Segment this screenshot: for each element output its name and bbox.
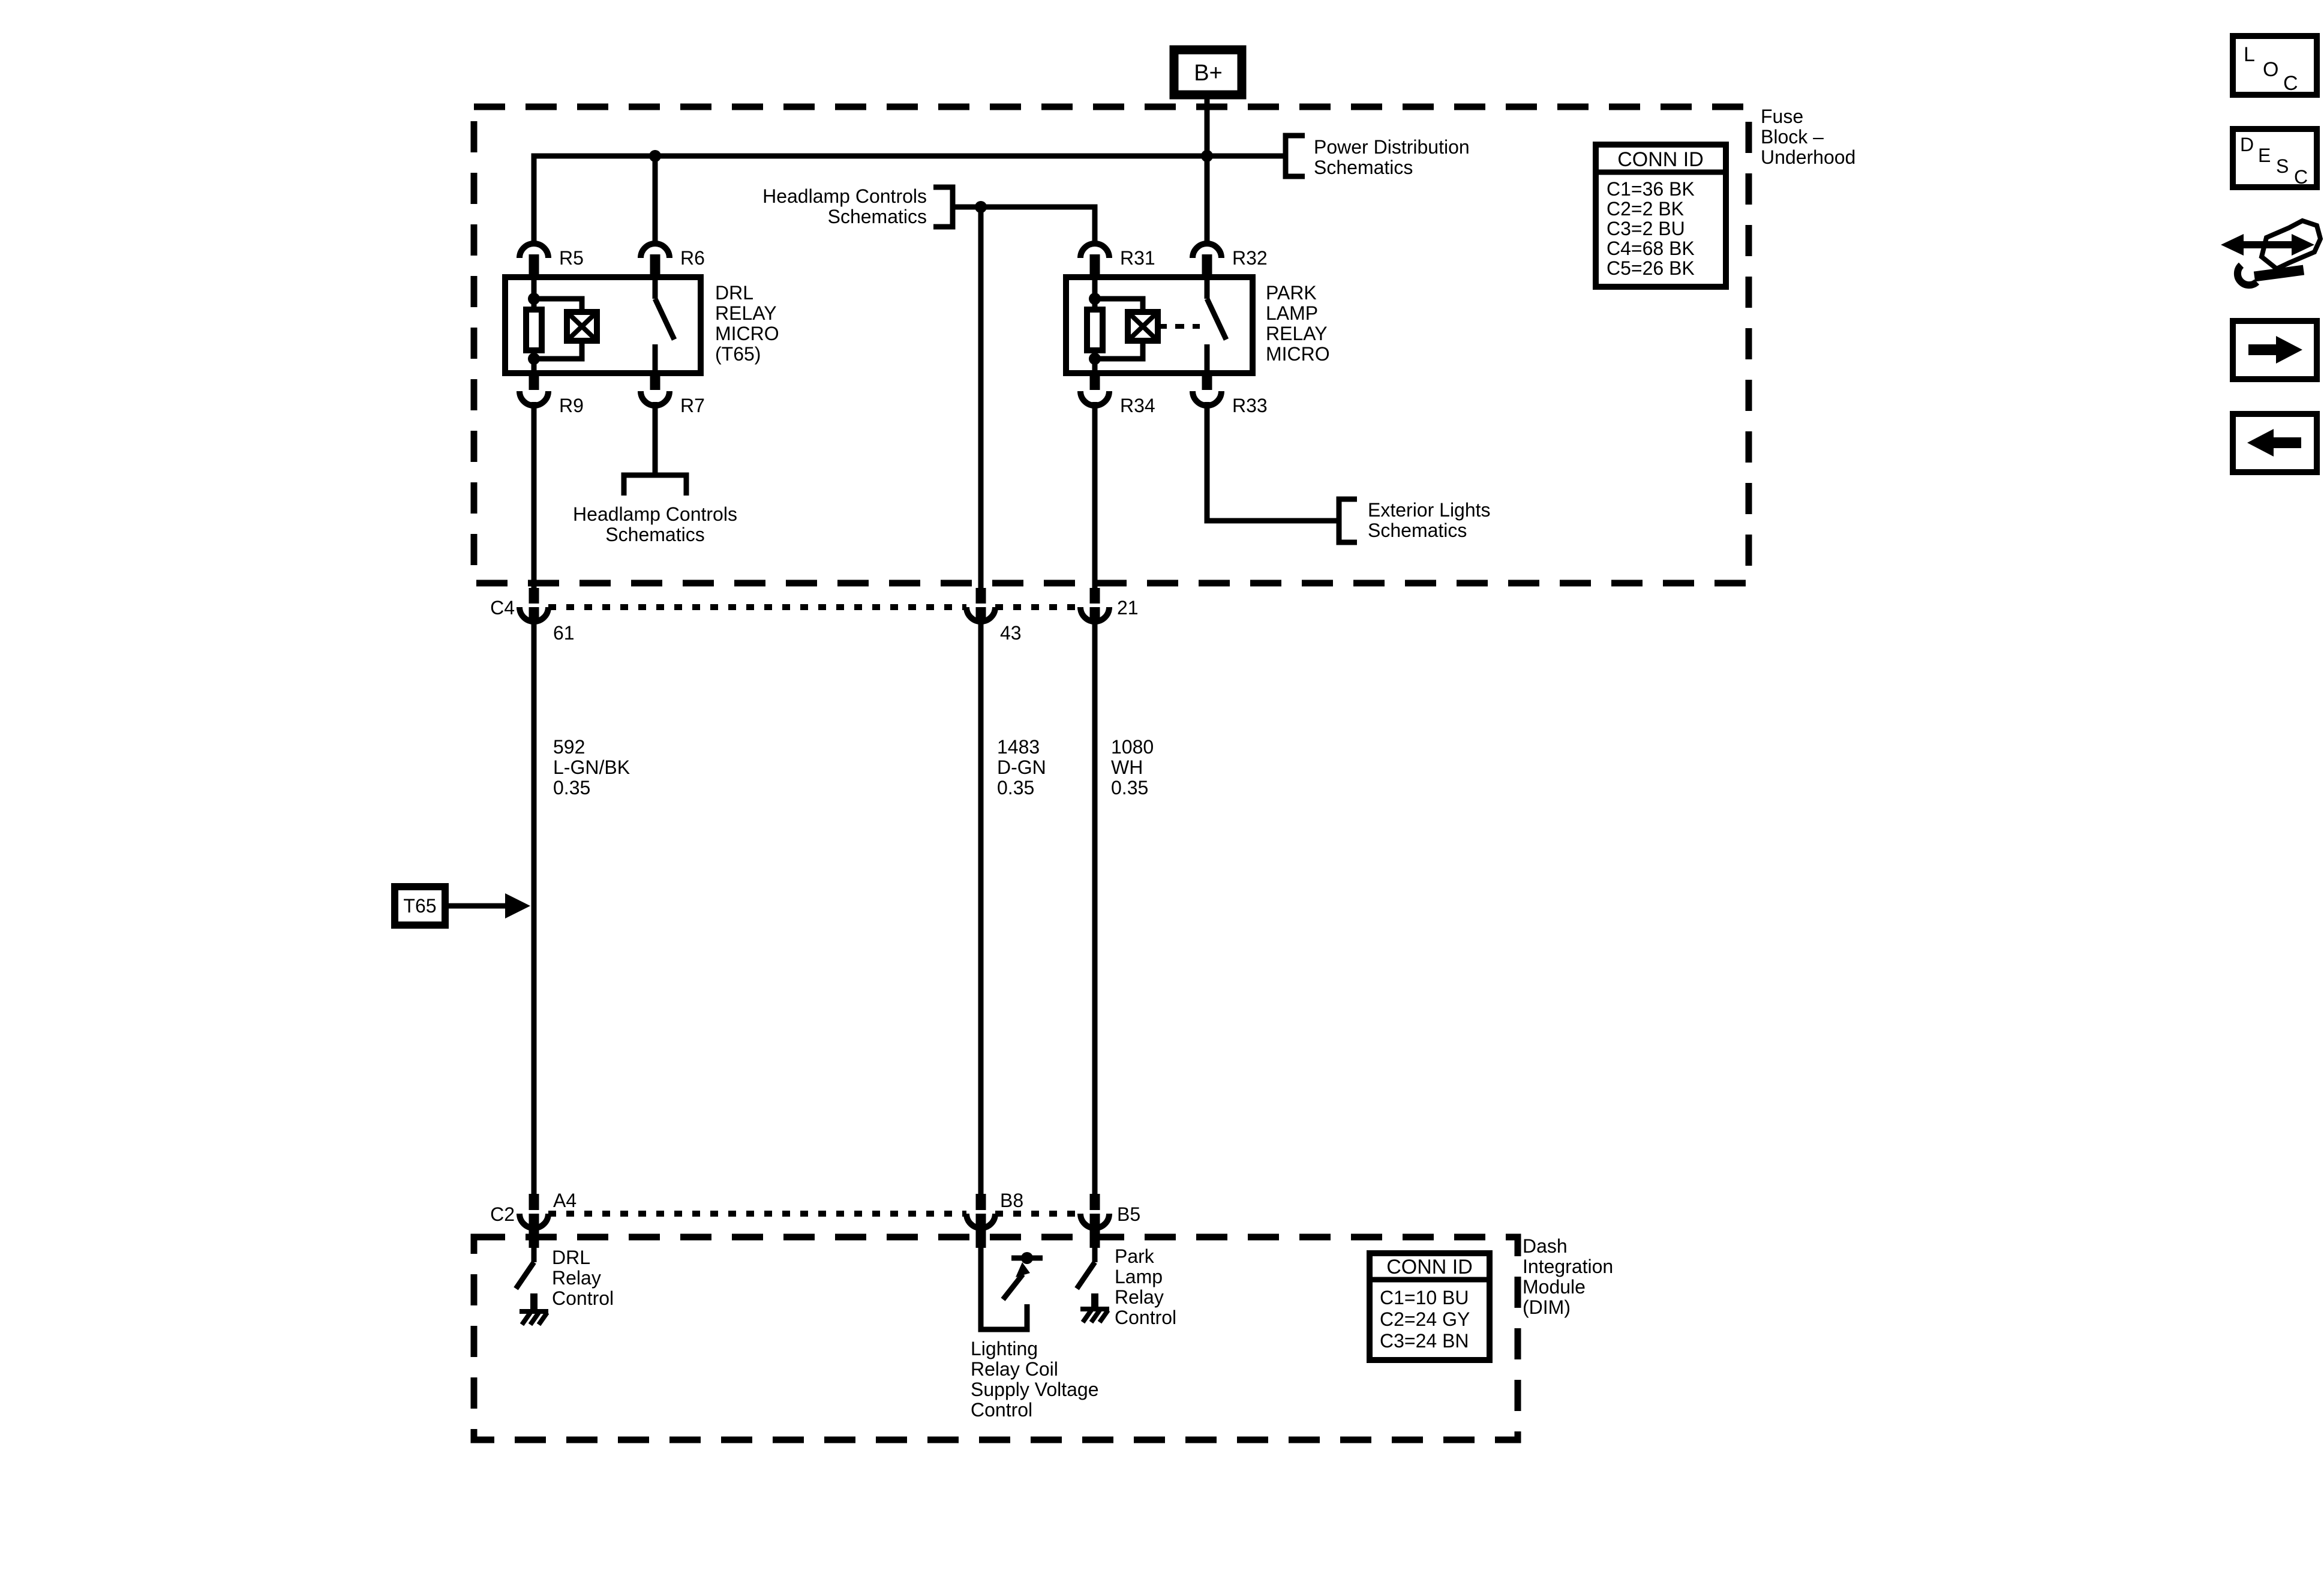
relay-name: DRL xyxy=(715,282,753,304)
fuse-block-label: Block – xyxy=(1761,126,1824,148)
pin-label-r33: R33 xyxy=(1232,395,1268,416)
pin-label-r31: R31 xyxy=(1120,247,1155,269)
circuit-number: 1483 xyxy=(997,736,1040,758)
pin-label-r32: R32 xyxy=(1232,247,1268,269)
relay-name: PARK xyxy=(1266,282,1317,304)
pin-label-a4: A4 xyxy=(553,1190,577,1211)
relay-name: LAMP xyxy=(1266,302,1318,324)
wire-size: 0.35 xyxy=(1111,777,1148,798)
connector-label-c2: C2 xyxy=(490,1203,515,1225)
junction-dot xyxy=(1021,1252,1033,1264)
pin-label-61: 61 xyxy=(553,622,575,644)
relay-name: RELAY xyxy=(1266,323,1328,344)
connector-label-c4: C4 xyxy=(490,597,515,619)
function-label: Lamp xyxy=(1115,1266,1163,1287)
dim-label: Integration xyxy=(1523,1256,1613,1277)
conn-id-title: CONN ID xyxy=(1617,148,1704,171)
circuit-number: 1080 xyxy=(1111,736,1154,758)
wire-size: 0.35 xyxy=(553,777,590,798)
wire-color: D-GN xyxy=(997,757,1046,778)
dim-label: Module xyxy=(1523,1276,1586,1298)
relay-name: (T65) xyxy=(715,343,761,365)
dim-label: (DIM) xyxy=(1523,1296,1571,1318)
function-label: Control xyxy=(1115,1307,1176,1328)
junction-dot xyxy=(975,201,987,213)
pin-label-b5: B5 xyxy=(1117,1203,1140,1225)
conn-id-title: CONN ID xyxy=(1386,1256,1473,1278)
b-plus-label: B+ xyxy=(1194,61,1223,86)
function-label: Lighting xyxy=(971,1338,1038,1359)
function-label: Supply Voltage xyxy=(971,1379,1099,1400)
desc-letter: C xyxy=(2294,166,2308,188)
relay-name: MICRO xyxy=(715,323,779,344)
ref-text: Schematics xyxy=(1368,520,1467,541)
wire-size: 0.35 xyxy=(997,777,1034,798)
conn-id-row: C1=36 BK xyxy=(1607,178,1695,200)
wrench-handle xyxy=(2254,270,2304,277)
resistor xyxy=(1087,310,1103,350)
wire-color: L-GN/BK xyxy=(553,757,630,778)
desc-letter: D xyxy=(2240,134,2254,155)
callout-label: T65 xyxy=(403,895,436,917)
ref-text: Schematics xyxy=(828,206,927,227)
loc-letter: L xyxy=(2244,43,2255,66)
dim-label: Dash xyxy=(1523,1235,1568,1257)
wire-color: WH xyxy=(1111,757,1143,778)
junction-dot xyxy=(1201,150,1213,162)
ref-text: Headlamp Controls xyxy=(762,185,927,207)
pin-label-r5: R5 xyxy=(559,247,584,269)
pin-label-b8: B8 xyxy=(1000,1190,1023,1211)
pin-label-r7: R7 xyxy=(680,395,705,416)
function-label: DRL xyxy=(552,1247,590,1268)
relay-name: RELAY xyxy=(715,302,777,324)
pin-label-r6: R6 xyxy=(680,247,705,269)
pin-label-r9: R9 xyxy=(559,395,584,416)
ref-text: Exterior Lights xyxy=(1368,499,1491,521)
function-label: Relay Coil xyxy=(971,1358,1058,1380)
paper-background xyxy=(0,0,2324,1573)
relay-name: MICRO xyxy=(1266,343,1330,365)
conn-id-row: C5=26 BK xyxy=(1607,257,1695,279)
conn-id-row: C4=68 BK xyxy=(1607,238,1695,259)
conn-id-row: C3=24 BN xyxy=(1380,1330,1469,1352)
conn-id-row: C2=24 GY xyxy=(1380,1308,1470,1330)
conn-id-row: C1=10 BU xyxy=(1380,1287,1469,1308)
pin-label-43: 43 xyxy=(1000,622,1022,644)
loc-letter: C xyxy=(2283,72,2298,95)
loc-letter: O xyxy=(2263,58,2278,81)
ref-text: Schematics xyxy=(1314,157,1413,178)
fuse-block-label: Underhood xyxy=(1761,146,1855,168)
desc-letter: S xyxy=(2276,155,2289,177)
function-label: Relay xyxy=(552,1267,601,1289)
junction-dot xyxy=(649,150,661,162)
ref-text: Power Distribution xyxy=(1314,136,1470,158)
circuit-number: 592 xyxy=(553,736,585,758)
fuse-block-label: Fuse xyxy=(1761,106,1803,127)
resistor xyxy=(526,310,542,350)
desc-letter: E xyxy=(2258,145,2271,166)
pin-label-r34: R34 xyxy=(1120,395,1155,416)
schematic-page: Fuse Block – Underhood B+ Power Distribu… xyxy=(0,0,2324,1573)
function-label: Control xyxy=(971,1399,1032,1421)
function-label: Control xyxy=(552,1287,614,1309)
function-label: Relay xyxy=(1115,1286,1164,1308)
function-label: Park xyxy=(1115,1245,1155,1267)
ref-text: Schematics xyxy=(605,524,704,545)
conn-id-row: C2=2 BK xyxy=(1607,198,1684,220)
ref-text: Headlamp Controls xyxy=(573,503,737,525)
pin-label-21: 21 xyxy=(1117,597,1139,619)
conn-id-row: C3=2 BU xyxy=(1607,218,1685,239)
